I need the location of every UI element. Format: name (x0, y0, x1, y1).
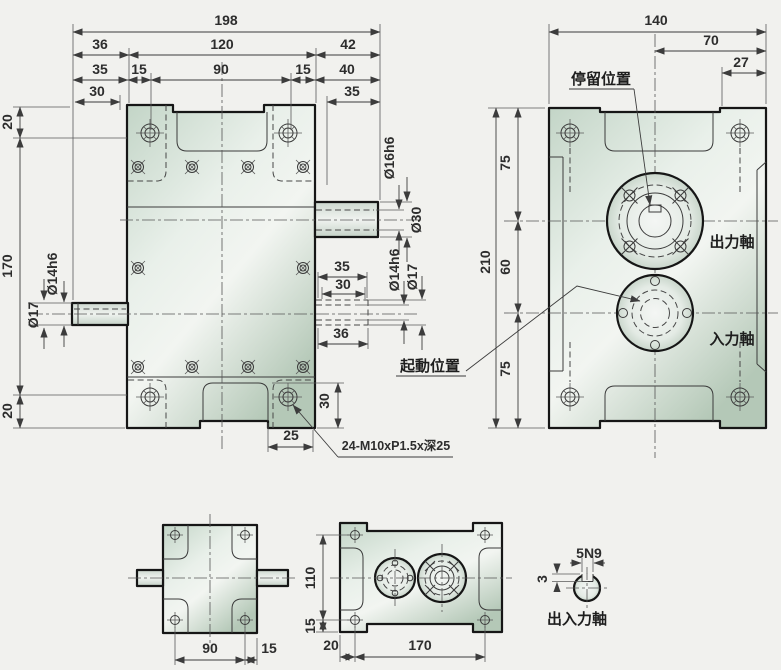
dim-output-bore-dia: Ø16h6 (381, 136, 397, 179)
dim-output-shaft-dia: Ø30 (408, 207, 424, 234)
dim-bore-len-35: 35 (334, 258, 350, 274)
dim-shaft-ext-right: 42 (340, 36, 356, 52)
dim-bottom-margin: 20 (0, 403, 15, 419)
indexer-drawing: 198 36 120 42 35 15 90 15 40 30 35 20 17… (0, 0, 781, 670)
shaft-section-detail: 5N9 3 出入力軸 (534, 545, 607, 628)
dim-input-shaft-dia2: Ø17 (25, 302, 41, 329)
dim-depth-110: 110 (302, 566, 318, 589)
dim-center-to-edge: 70 (703, 32, 719, 48)
dim-bore-len-36: 36 (333, 325, 349, 341)
dim-key-depth: 3 (534, 575, 550, 583)
dim-left-offset: 35 (92, 61, 108, 77)
bottom-front-view: 90 15 (128, 514, 297, 665)
dim-bolt-span-90: 90 (202, 640, 218, 656)
dim-bore-len-30: 30 (335, 276, 351, 292)
dim-bolt-edge-15: 15 (261, 640, 277, 656)
dim-depth-15: 15 (302, 618, 318, 634)
dim-body-height: 170 (0, 254, 15, 278)
dim-hole-to-edge: 27 (733, 54, 749, 70)
front-view: 198 36 120 42 35 15 90 15 40 30 35 20 17… (0, 12, 453, 457)
dim-input-to-bottom: 75 (497, 361, 513, 377)
dim-input-shaft-dia: Ø14h6 (44, 252, 60, 295)
dim-output-to-input: 60 (497, 259, 513, 275)
dim-right-offset-35: 35 (344, 83, 360, 99)
technical-drawing-page: 198 36 120 42 35 15 90 15 40 30 35 20 17… (0, 0, 781, 670)
dim-hole-inset-right: 15 (295, 61, 311, 77)
dim-hole-inset-left: 15 (131, 61, 147, 77)
dim-right-offset: 40 (339, 61, 355, 77)
start-position-label: 起動位置 (399, 357, 460, 375)
dim-body-width: 120 (210, 36, 234, 52)
dim-bolt-span-170: 170 (408, 637, 432, 653)
dim-edge-20: 20 (323, 637, 339, 653)
dim-corner-offset-30: 30 (316, 393, 332, 409)
thread-spec-note: 24-M10xP1.5x深25 (342, 438, 450, 453)
io-shaft-label: 出入力軸 (547, 610, 607, 628)
dim-pad-offset: 30 (89, 83, 105, 99)
stop-position-label: 停留位置 (571, 70, 631, 88)
dim-top-margin: 20 (0, 114, 15, 130)
dim-shaft-ext-left: 36 (92, 36, 108, 52)
output-shaft-label: 出力軸 (709, 233, 754, 251)
dim-side-width: 140 (644, 12, 668, 28)
input-flange (617, 275, 693, 351)
output-flange (607, 173, 703, 269)
bottom-top-view: 110 15 20 170 (302, 523, 512, 662)
side-view: 140 70 27 75 210 60 75 停留位置 起動位置 出力軸 入力軸 (396, 12, 778, 458)
dim-hidden-bore-dia2: Ø17 (404, 264, 420, 291)
dim-corner-offset-25: 25 (283, 427, 299, 443)
input-shaft-label: 入力軸 (709, 330, 754, 348)
output-shaft-stub (315, 202, 378, 237)
dim-overall-width: 198 (214, 12, 238, 28)
dim-top-to-output: 75 (497, 155, 513, 171)
dim-hidden-bore-dia: Ø14h6 (386, 248, 402, 291)
dim-hole-span: 90 (213, 61, 229, 77)
dim-side-height: 210 (477, 250, 493, 274)
dim-key-width: 5N9 (576, 545, 602, 561)
